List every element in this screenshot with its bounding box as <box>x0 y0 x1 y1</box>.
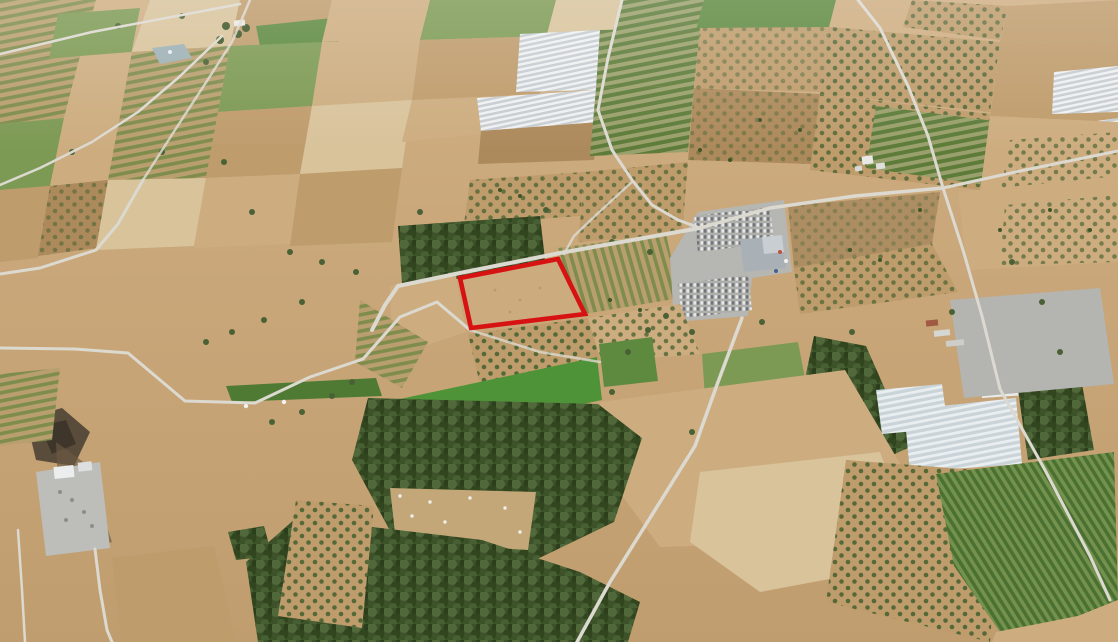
clearing-debris-dot <box>518 530 521 533</box>
vehicle-dot <box>244 404 248 408</box>
scattered-trees-dot <box>319 259 325 265</box>
rural-building <box>861 155 873 164</box>
depot-clutter-dot <box>70 498 74 502</box>
scattered-trees-dot <box>608 298 612 302</box>
scattered-trees-dot <box>849 329 855 335</box>
vehicle-dot <box>784 259 788 263</box>
crop-field <box>599 337 658 387</box>
field <box>96 178 206 250</box>
scattered-trees-dot <box>299 299 305 305</box>
scattered-trees-dot <box>287 249 293 255</box>
scattered-trees-dot <box>638 308 642 312</box>
clearing-debris-dot <box>503 506 506 509</box>
clearing-debris-dot <box>410 514 413 517</box>
container-yard <box>950 288 1114 398</box>
scattered-trees-dot <box>1057 349 1063 355</box>
depot-clutter-dot <box>58 490 62 494</box>
scattered-trees-dot <box>728 158 732 162</box>
container <box>926 319 939 326</box>
scattered-trees-dot <box>299 409 305 415</box>
clearing-debris-dot <box>428 500 431 503</box>
soil-marks-dot <box>519 299 522 302</box>
scattered-trees-dot <box>1039 299 1045 305</box>
scattered-trees-dot <box>848 248 852 252</box>
scattered-trees-dot <box>468 238 472 242</box>
scattered-trees-dot <box>221 159 227 165</box>
vehicle-dot <box>282 400 286 404</box>
clearing-debris-dot <box>468 496 471 499</box>
depot-clutter-dot <box>64 518 68 522</box>
scattered-trees-dot <box>647 249 653 255</box>
scattered-trees-dot <box>249 209 255 215</box>
field <box>194 174 300 248</box>
soil-marks-dot <box>509 311 512 314</box>
rural-building <box>876 162 886 169</box>
scattered-trees-dot <box>269 419 275 425</box>
rural-building <box>855 166 863 172</box>
vehicle <box>774 269 778 273</box>
scattered-trees-dot <box>759 319 765 325</box>
olive-grove <box>464 172 585 224</box>
scattered-trees-dot <box>689 429 695 435</box>
scattered-trees-dot <box>417 209 423 215</box>
scattered-trees-dot <box>1048 208 1052 212</box>
scattered-trees-dot <box>261 317 267 323</box>
plastic-tunnels <box>904 398 1022 472</box>
depot-building <box>78 461 93 471</box>
depot-clutter-dot <box>82 510 86 514</box>
clearing-debris-dot <box>398 494 401 497</box>
scattered-trees-dot <box>998 228 1002 232</box>
scattered-trees-dot <box>329 393 335 399</box>
scattered-trees-dot <box>1009 259 1015 265</box>
scattered-trees-dot <box>949 309 955 315</box>
vehicle <box>784 259 788 263</box>
scattered-trees-dot <box>878 258 882 262</box>
scattered-trees-dot <box>353 269 359 275</box>
vehicle <box>778 250 782 254</box>
scattered-trees-dot <box>543 207 549 213</box>
tree-grove <box>1018 384 1094 460</box>
soil-marks-dot <box>494 289 497 292</box>
scattered-trees-dot <box>203 339 209 345</box>
scattered-trees-dot <box>609 389 615 395</box>
vineyard-field <box>0 368 60 446</box>
vehicle-dot <box>778 250 782 254</box>
scattered-trees-dot <box>498 188 502 192</box>
olive-grove <box>578 162 688 242</box>
vehicle-dot <box>774 269 778 273</box>
scattered-trees-dot <box>349 379 355 385</box>
satellite-map-canvas[interactable] <box>0 0 1118 642</box>
scattered-trees-dot <box>229 329 235 335</box>
scattered-trees-dot <box>1088 228 1092 232</box>
depot-clutter-dot <box>90 524 94 528</box>
field <box>290 168 402 246</box>
scattered-trees-dot <box>625 349 631 355</box>
scattered-trees-dot <box>645 327 651 333</box>
scattered-trees-dot <box>663 313 669 319</box>
satellite-map[interactable] <box>0 0 1118 642</box>
scattered-trees-dot <box>689 329 695 335</box>
depot-building <box>53 465 74 479</box>
olive-grove <box>1000 195 1118 265</box>
soil-marks-dot <box>539 287 542 290</box>
scattered-trees-dot <box>518 194 522 198</box>
atmospheric-haze <box>0 0 1118 150</box>
clearing-debris-dot <box>443 520 446 523</box>
scattered-trees-dot <box>918 208 922 212</box>
